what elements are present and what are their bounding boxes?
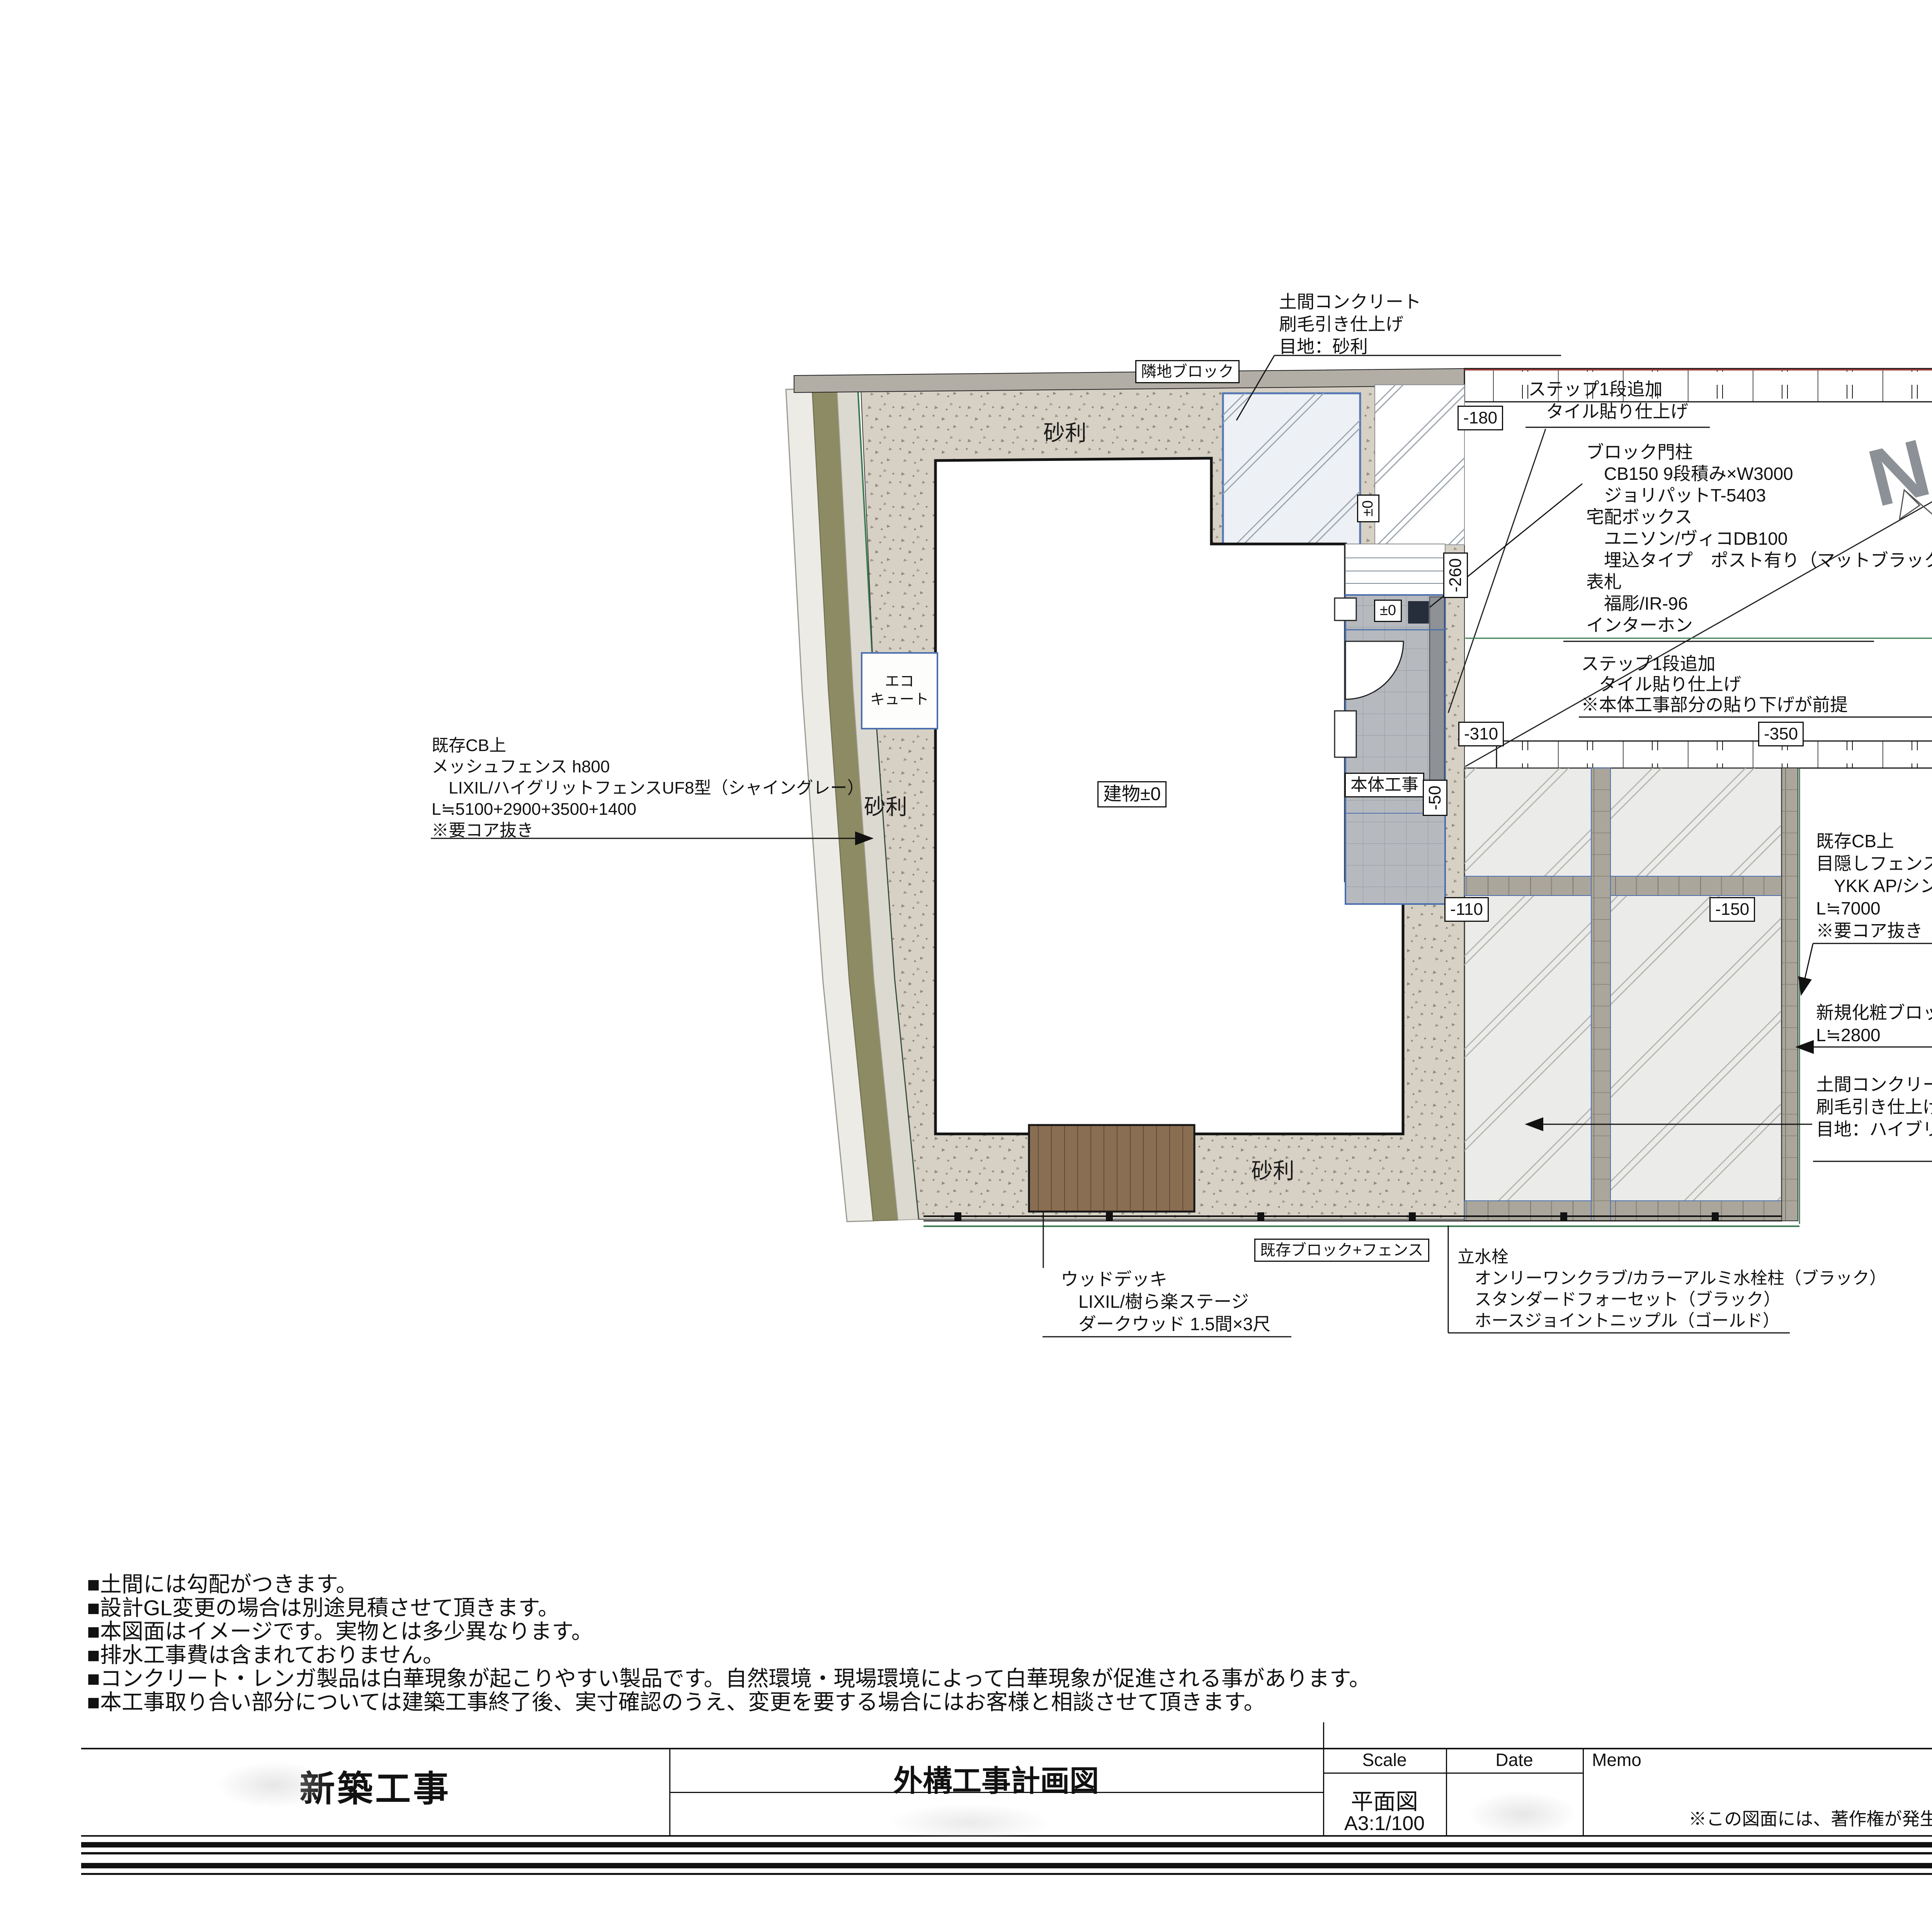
pad-level-tag-text: ±0 (1360, 500, 1376, 517)
level-350-text: -350 (1764, 724, 1798, 743)
annotation-doma-top: 土間コンクリート刷毛引き仕上げ目地：砂利 (1279, 291, 1421, 358)
text-line: メッシュフェンス h800 (432, 756, 864, 777)
memo-header: Memo (1592, 1749, 1747, 1770)
porch-level-tag-text: ±0 (1380, 602, 1396, 619)
level-310-text: -310 (1464, 724, 1498, 743)
level-150-text: -150 (1715, 900, 1749, 919)
text-line: オンリーワンクラブ/カラーアルミ水栓柱（ブラック） (1458, 1268, 1886, 1289)
text-line: ステップ1段追加 (1581, 654, 1848, 674)
doma-concrete-pad-north (1223, 393, 1360, 545)
bottom-band-rule-3 (81, 1852, 1932, 1854)
drawing-sheet: N 砂利 砂利 砂利 隣地ブロック 建物±0 本体工事 既存ブロック+フェンス … (0, 0, 1932, 1912)
drawing-title: 外構工事計画図 (669, 1757, 1323, 1800)
text-line: ブロック門柱 (1586, 441, 1932, 463)
text-line: LIXIL/ハイグリットフェンスUF8型（シャイングレー） (432, 777, 864, 799)
text-line: タイル貼り仕上げ (1581, 674, 1848, 695)
level-110-text: -110 (1450, 900, 1483, 919)
annotation-step-add-2: ステップ1段追加 タイル貼り仕上げ※本体工事部分の貼り下げが前提 (1581, 654, 1848, 715)
ecocute-label-2: キュート (870, 691, 929, 709)
project-title: 新築工事 (81, 1760, 669, 1812)
gravel-label-bottom: 砂利 (1251, 1159, 1294, 1183)
scale-value: A3:1/100 (1323, 1812, 1446, 1835)
redaction-smudge-3 (1468, 1791, 1577, 1837)
scale-header: Scale (1323, 1749, 1446, 1770)
wall-opening-1 (1335, 598, 1356, 620)
text-line: L≒7000 (1816, 897, 1932, 919)
approach-landing-pad (1375, 385, 1464, 545)
annotation-step-add-1: ステップ1段追加 タイル貼り仕上げ (1528, 378, 1688, 423)
bottom-band-rule-4 (81, 1863, 1932, 1868)
annotation-new-block: 新規化粧ブロック120 1段積みL≒2800 (1816, 1001, 1932, 1046)
level-310-tag: -310 (1458, 722, 1504, 746)
text-line: 既存CB上 (432, 735, 864, 756)
entrance-porch (1335, 544, 1445, 904)
level-350-tag: -350 (1758, 722, 1804, 746)
memo-note: ※この図面には、著作権が発生いたします。 (1583, 1805, 1932, 1830)
text-line: タイル貼り仕上げ (1528, 400, 1688, 423)
text-line: 宅配ボックス (1586, 506, 1932, 528)
text-line: 目地：砂利 (1279, 335, 1421, 358)
text-line: 既存CB上 (1816, 830, 1932, 852)
text-line: L≒2800 (1816, 1024, 1932, 1046)
level-180-text: -180 (1463, 408, 1497, 427)
neighbor-block-tag: 隣地ブロック (1135, 360, 1240, 383)
text-line: ステップ1段追加 (1528, 378, 1688, 400)
existing-block-fence-tag-text: 既存ブロック+フェンス (1260, 1242, 1423, 1259)
level-150-tag: -150 (1709, 897, 1755, 922)
text-line: ※要コア抜き (1816, 919, 1932, 942)
remarks-list: ■土間には勾配がつきます。■設計GL変更の場合は別途見積させて頂きます。■本図面… (87, 1572, 1371, 1714)
redaction-smudge-1 (216, 1762, 332, 1808)
annotation-privacy-fence: 既存CB上目隠しフェンス h800 YKK AP/シンプレオフェンスYS3型（ブ… (1816, 830, 1932, 942)
annotation-doma-right: 土間コンクリート刷毛引き仕上げ目地：ハイブリック6 G-2 (1816, 1073, 1932, 1140)
text-line: 立水栓 (1458, 1246, 1886, 1268)
text-line: 表札 (1586, 571, 1932, 593)
text-line: インターホン (1586, 614, 1932, 636)
text-line: ■本図面はイメージです。実物とは多少異なります。 (87, 1620, 1371, 1643)
scale-type: 平面図 (1323, 1783, 1446, 1816)
text-line: LIXIL/樹ら楽ステージ (1061, 1290, 1270, 1313)
redaction-smudge-2 (889, 1803, 1051, 1842)
building-level-tag: 建物±0 (1097, 781, 1167, 807)
text-line: ジョリパットT-5403 (1586, 484, 1932, 506)
annotation-faucet: 立水栓 オンリーワンクラブ/カラーアルミ水栓柱（ブラック） スタンダードフォーセ… (1458, 1246, 1886, 1331)
text-line: 埋込タイプ ポスト有り（マットブラック） (1586, 549, 1932, 571)
gravel-label-left: 砂利 (864, 795, 907, 819)
level-50-text: -50 (1425, 785, 1444, 810)
building-outline (935, 458, 1403, 1134)
text-line: ウッドデッキ (1061, 1268, 1270, 1290)
text-line: ※本体工事部分の貼り下げが前提 (1581, 695, 1848, 715)
building-level-tag-text: 建物±0 (1103, 784, 1161, 804)
pad-level-tag: ±0 (1357, 495, 1379, 522)
text-line: ホースジョイントニップル（ゴールド） (1458, 1310, 1886, 1331)
annotation-gate-post: ブロック門柱 CB150 9段積み×W3000 ジョリパットT-5403宅配ボッ… (1586, 441, 1932, 636)
scale-date-header-rule (1323, 1773, 1583, 1774)
text-line: ※要コア抜き (432, 820, 864, 841)
wood-deck (1029, 1125, 1194, 1212)
text-line: ■土間には勾配がつきます。 (87, 1572, 1371, 1596)
text-line: 目隠しフェンス h800 (1816, 852, 1932, 875)
text-line: ■排水工事費は含まれておりません。 (87, 1643, 1371, 1667)
delivery-box-post (1408, 601, 1429, 624)
text-line: 土間コンクリート (1816, 1073, 1932, 1096)
level-50-tag: -50 (1423, 780, 1447, 816)
text-line: L≒5100+2900+3500+1400 (432, 799, 864, 820)
text-line: ■コンクリート・レンガ製品は白華現象が起こりやすい製品です。自然環境・現場環境に… (87, 1667, 1371, 1690)
text-line: スタンダードフォーセット（ブラック） (1458, 1289, 1886, 1310)
level-260-tag: -260 (1443, 552, 1468, 598)
annotation-wood-deck: ウッドデッキ LIXIL/樹ら楽ステージ ダークウッド 1.5間×3尺 (1061, 1268, 1270, 1335)
gravel-label-top: 砂利 (1043, 421, 1087, 445)
text-line: CB150 9段積み×W3000 (1586, 463, 1932, 484)
wall-opening-2 (1335, 711, 1356, 757)
ecocute-unit: エコ キュート (861, 652, 938, 729)
hontai-kouji-tag: 本体工事 (1345, 773, 1424, 797)
text-line: ■本工事取り合い部分については建築工事終了後、実寸確認のうえ、変更を要する場合に… (87, 1690, 1371, 1714)
text-line: ダークウッド 1.5間×3尺 (1061, 1313, 1270, 1335)
text-line: ■設計GL変更の場合は別途見積させて頂きます。 (87, 1596, 1371, 1620)
porch-level-tag: ±0 (1374, 600, 1402, 622)
new-block-wall-strip (1782, 768, 1798, 1221)
bottom-band-rule-5 (81, 1873, 1932, 1875)
level-180-tag: -180 (1458, 406, 1503, 430)
text-line: 福彫/IR-96 (1586, 593, 1932, 614)
driveway-slabs (1464, 768, 1799, 1224)
text-line: 目地：ハイブリック6 G-2 (1816, 1118, 1932, 1140)
date-header: Date (1446, 1749, 1583, 1770)
text-line: 新規化粧ブロック120 1段積み (1816, 1001, 1932, 1024)
hontai-kouji-tag-text: 本体工事 (1350, 775, 1418, 794)
annotation-mesh-fence: 既存CB上メッシュフェンス h800 LIXIL/ハイグリットフェンスUF8型（… (432, 735, 864, 841)
text-line: 刷毛引き仕上げ (1816, 1096, 1932, 1118)
level-260-text: -260 (1446, 558, 1465, 592)
text-line: ユニソン/ヴィコDB100 (1586, 528, 1932, 549)
neighbor-block-tag-text: 隣地ブロック (1141, 363, 1234, 380)
bottom-band-rule-2 (81, 1842, 1932, 1847)
text-line: 刷毛引き仕上げ (1279, 313, 1421, 335)
existing-block-fence-tag: 既存ブロック+フェンス (1254, 1239, 1429, 1262)
text-line: 土間コンクリート (1279, 291, 1421, 313)
text-line: YKK AP/シンプレオフェンスYS3型（ブラウン） (1816, 875, 1932, 897)
level-110-tag: -110 (1444, 897, 1489, 922)
ecocute-label-1: エコ (885, 673, 914, 691)
